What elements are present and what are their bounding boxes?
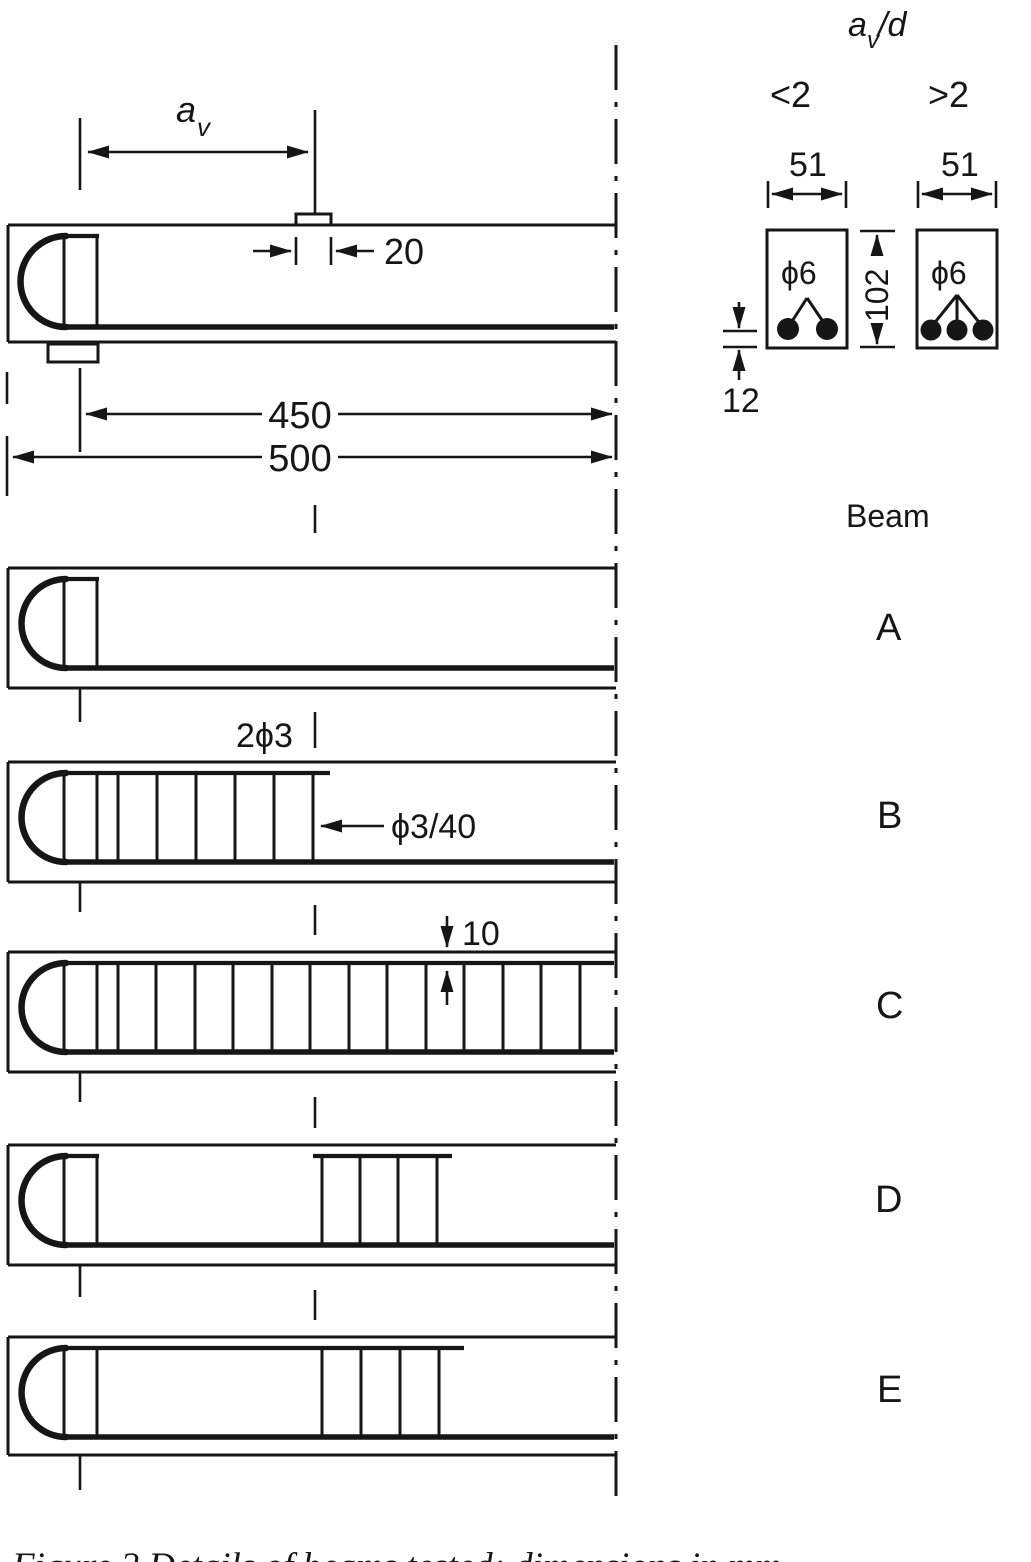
rebar-dot (816, 318, 838, 340)
beam-label-d: D (875, 1179, 902, 1221)
section-panel: a v /d <2 >2 51 51 ϕ6 ϕ6 (722, 6, 997, 420)
top-bars-label: 2ϕ3 (236, 717, 293, 755)
width-left-label: 51 (789, 146, 827, 184)
top-beam-drawing (8, 214, 616, 362)
figure-canvas: a v 20 450 500 (0, 0, 1031, 1562)
beam-a-drawing (8, 568, 616, 688)
bar-hook (22, 1156, 67, 1245)
ratio-left-label: <2 (770, 74, 811, 115)
figure-page: a v 20 450 500 (0, 0, 1031, 1562)
section-left: ϕ6 (767, 230, 847, 348)
rebar-dot (921, 320, 942, 341)
dimension-av: a v (80, 89, 315, 215)
beam-column-header: Beam (846, 498, 930, 534)
dimension-102: 102 (859, 231, 895, 347)
beam-d-drawing (8, 1145, 616, 1265)
beam-c-drawing: 10 (8, 915, 616, 1072)
bottom-cover-label: 12 (722, 382, 760, 420)
depth-label: 102 (859, 269, 895, 322)
av-label: a (176, 89, 196, 130)
beam-label-c: C (876, 985, 903, 1027)
avd-header-over-d: /d (876, 6, 907, 44)
bars-label: ϕ6 (781, 255, 817, 291)
beam-b-drawing: 2ϕ3 ϕ3/40 (8, 717, 616, 882)
dimension-450: 450 (80, 368, 612, 452)
span-label: 450 (268, 395, 331, 437)
dimension-20: 20 (253, 231, 424, 272)
bar-hook (22, 773, 67, 862)
bearing-plate (48, 344, 98, 362)
beam-label-a: A (876, 607, 902, 649)
beam-e-drawing (8, 1337, 616, 1455)
rebar-dot (777, 318, 799, 340)
load-plate (296, 214, 331, 225)
beam-label-column: Beam A B C D E (846, 498, 930, 1411)
bar-hook (22, 1348, 66, 1437)
stirrup-spec-label: ϕ3/40 (391, 808, 476, 846)
beam-label-e: E (877, 1369, 902, 1411)
dimension-12: 12 (722, 302, 760, 420)
section-right: ϕ6 (917, 230, 997, 348)
top-cover-label: 10 (462, 915, 500, 953)
avd-header-a: a (848, 6, 867, 44)
width-right-label: 51 (941, 146, 979, 184)
av-sub-label: v (197, 112, 212, 142)
length-label: 500 (268, 438, 331, 480)
figure-caption: Figure 2 Details of beams tested; dimens… (11, 1546, 781, 1562)
rebar-dot (973, 320, 994, 341)
ratio-right-label: >2 (928, 74, 969, 115)
bar-hook (22, 579, 67, 668)
bar-hook (22, 963, 67, 1052)
bar-hook (21, 236, 67, 327)
rebar-dot (947, 320, 968, 341)
beam-label-b: B (877, 795, 902, 837)
plate-width-label: 20 (384, 231, 424, 272)
bars-label: ϕ6 (931, 255, 967, 291)
